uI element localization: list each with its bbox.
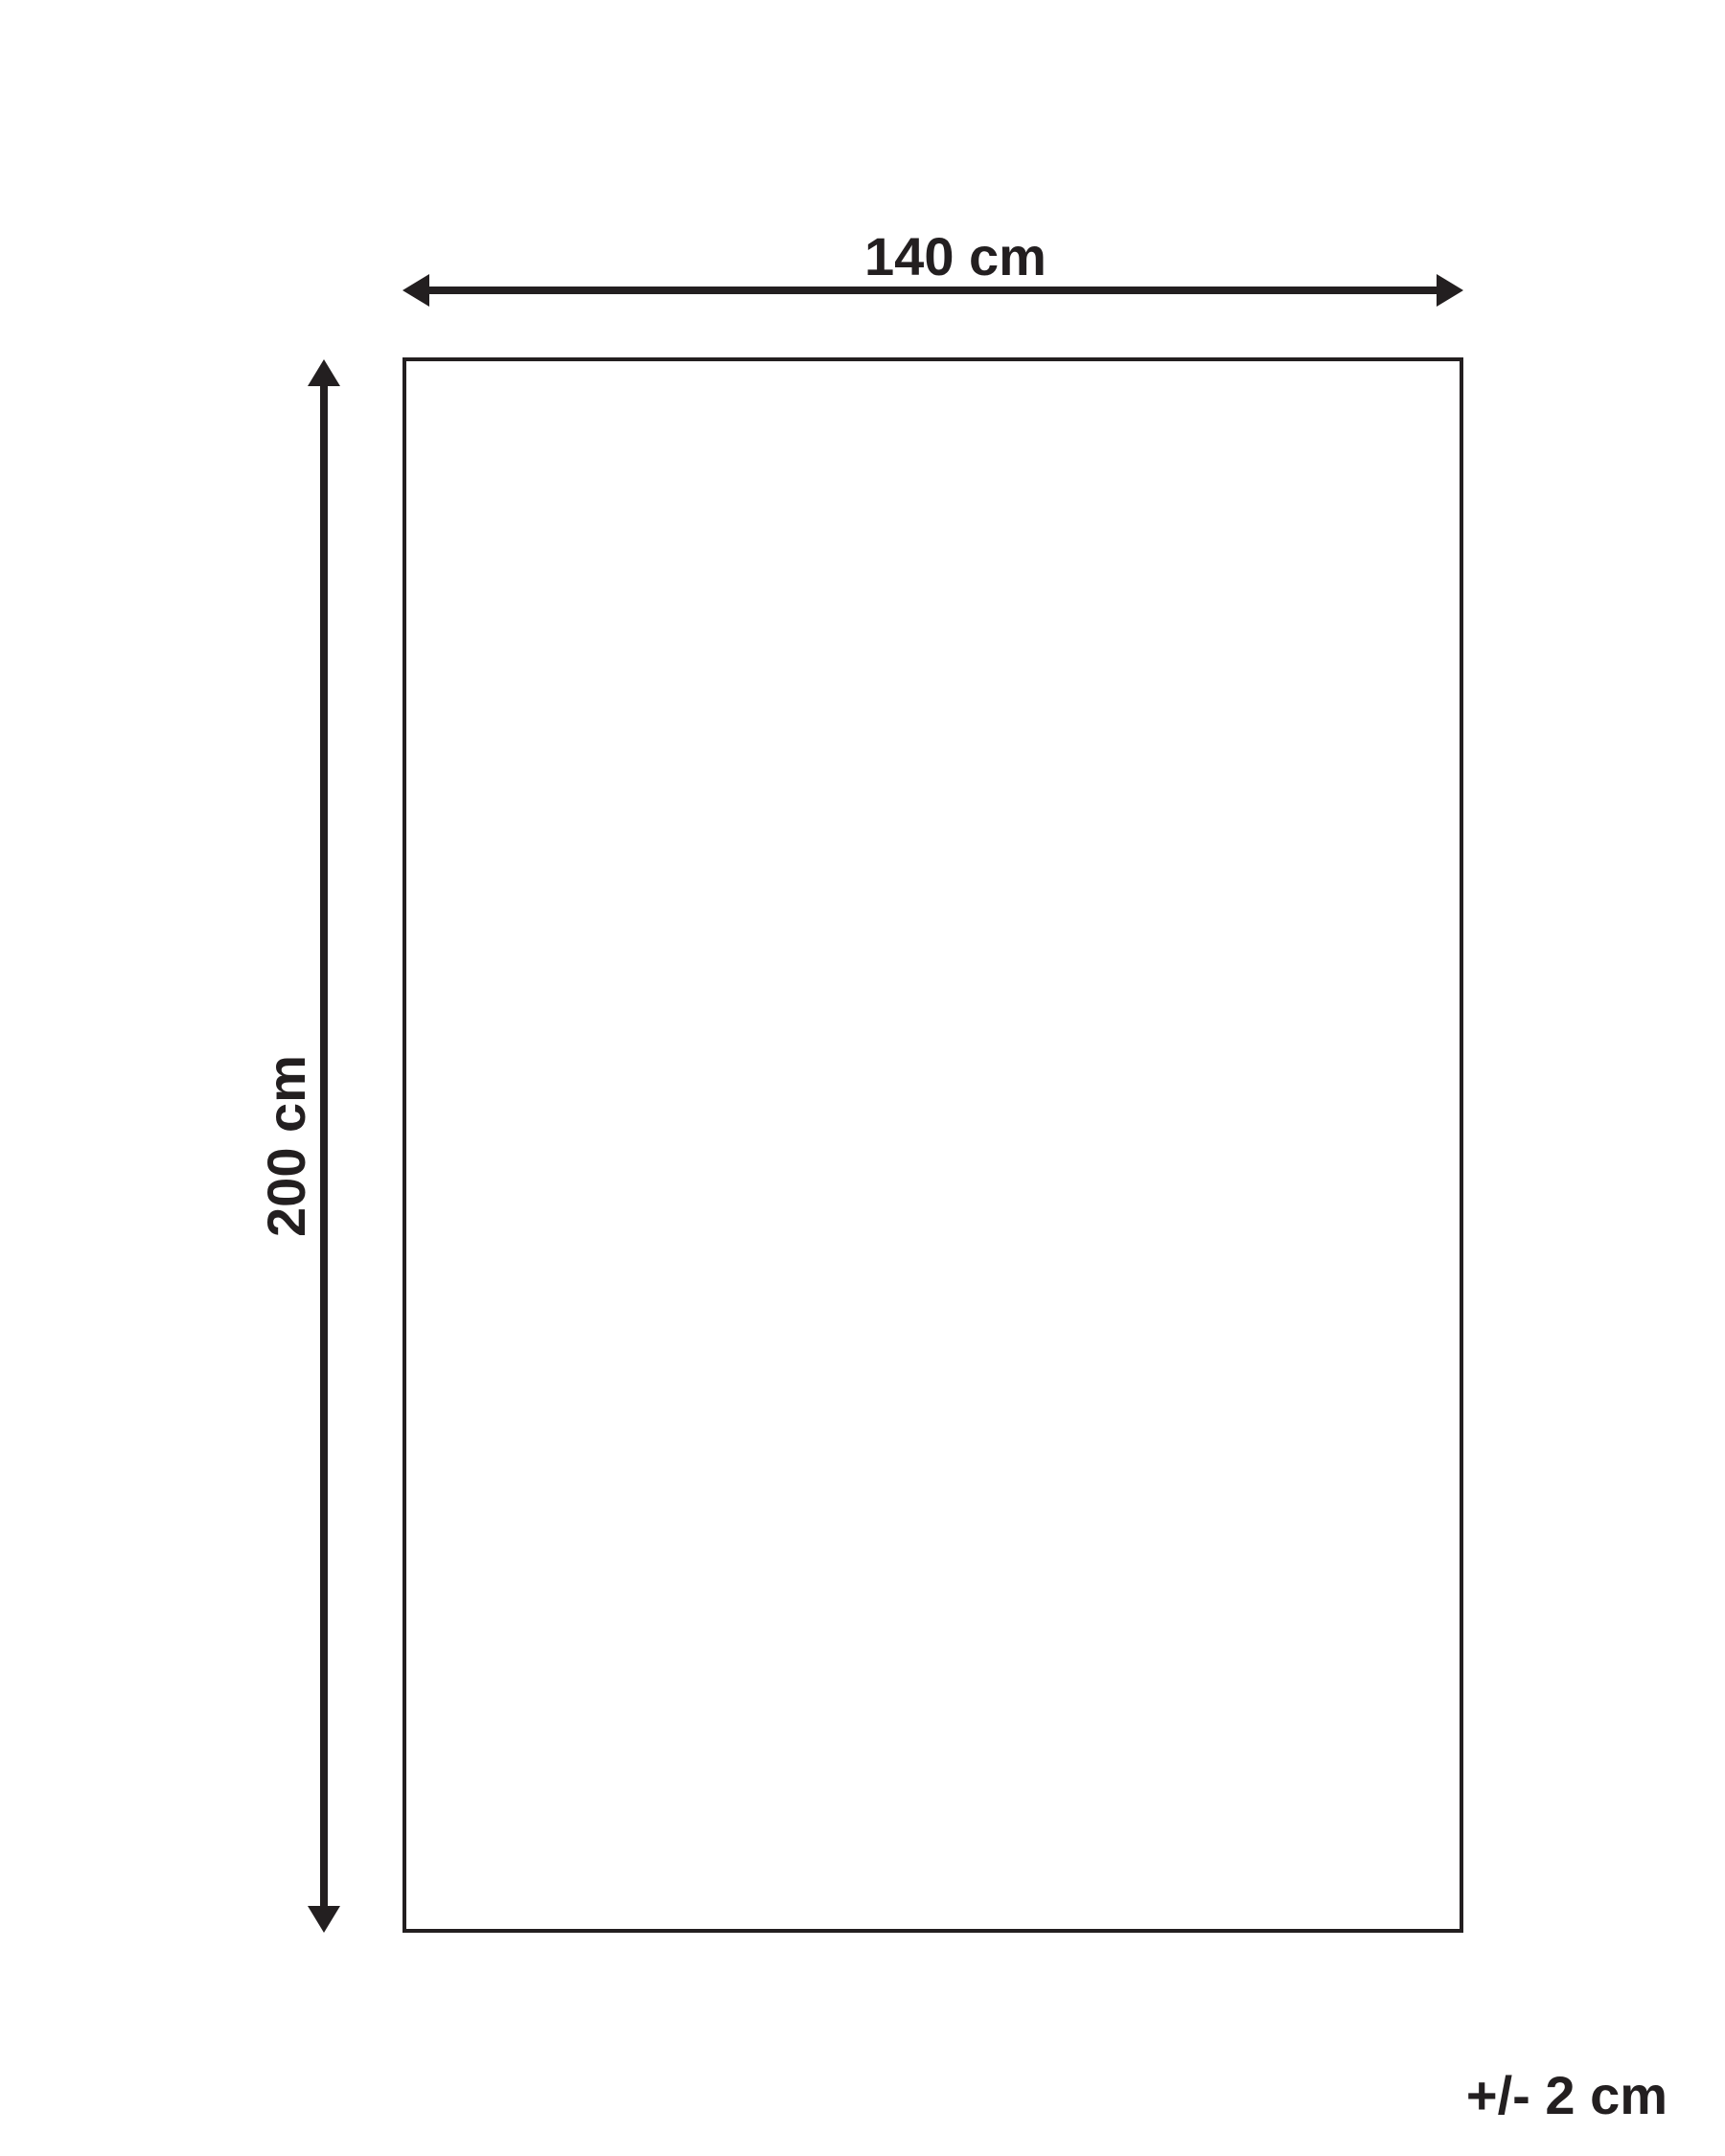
height-dimension-label: 200 cm xyxy=(260,1055,313,1237)
tolerance-label: +/- 2 cm xyxy=(1466,2069,1667,2122)
width-dimension-label: 140 cm xyxy=(864,230,1046,284)
dimension-diagram: 140 cm 200 cm +/- 2 cm xyxy=(0,0,1725,2156)
